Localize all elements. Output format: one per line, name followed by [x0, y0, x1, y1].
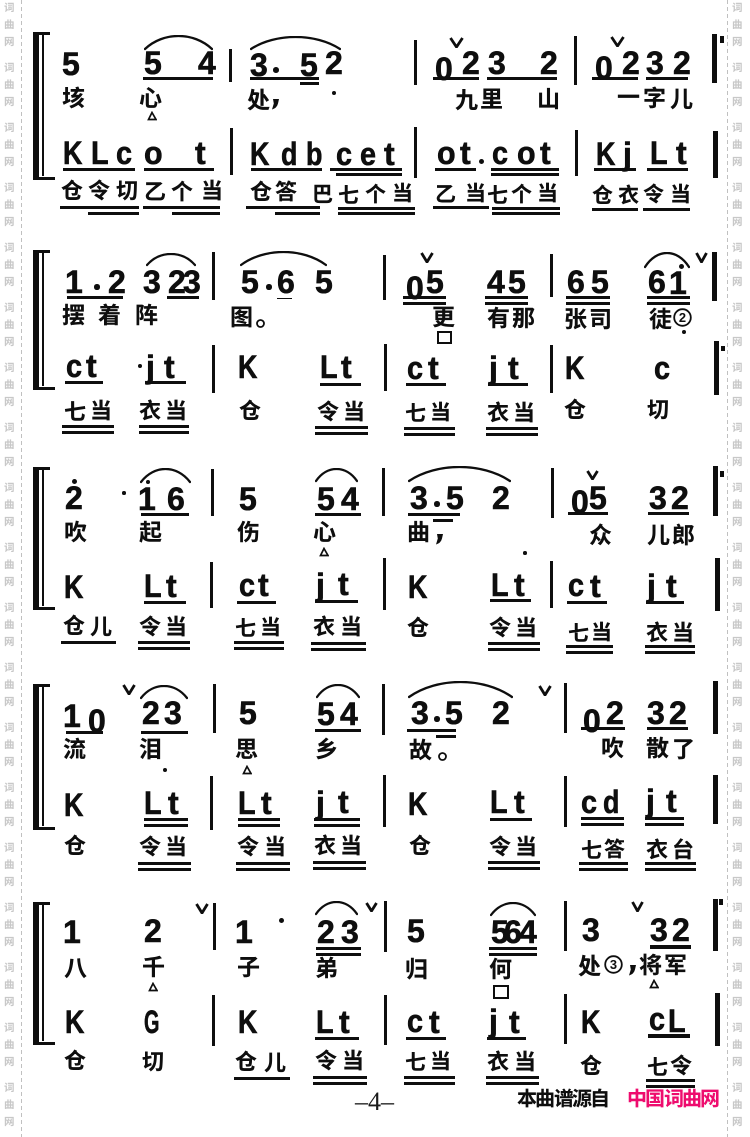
svg-text:3: 3: [610, 957, 617, 972]
svg-text:2: 2: [679, 310, 686, 325]
